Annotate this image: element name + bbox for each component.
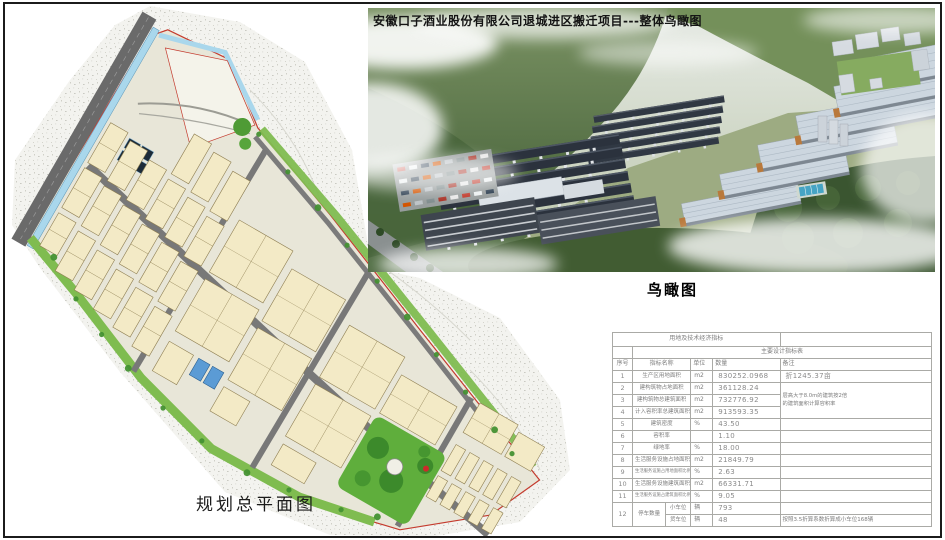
table-row: 5 建筑密度 % 43.50 bbox=[613, 419, 932, 431]
drawing-sheet: 规划总平面图 bbox=[0, 0, 945, 540]
table-title: 用地及技术经济指标 bbox=[613, 333, 781, 347]
table-row: 8 生活服务设施占地面积 m2 21849.79 bbox=[613, 455, 932, 467]
table-row: 6 容积率 1.10 bbox=[613, 431, 932, 443]
indicator-table: 用地及技术经济指标 主要设计指标表 序号 指标名称 单位 数量 备注 1 生产区… bbox=[612, 332, 932, 527]
table-row: 10 生活服务设施建筑面积 m2 66331.71 bbox=[613, 479, 932, 491]
table-row: 9 生活服务设施占用地面积比例 % 2.63 bbox=[613, 467, 932, 479]
col-header-no: 序号 bbox=[613, 359, 633, 371]
merged-remark: 层高大于8.0m的建筑按2倍 的建筑面积计算容积率 bbox=[780, 383, 932, 419]
table-row: 11 生活服务设施占建筑面积比例 % 9.05 bbox=[613, 491, 932, 503]
site-plan-caption: 规划总平面图 bbox=[196, 490, 316, 515]
col-header-remark: 备注 bbox=[780, 359, 932, 371]
col-header-unit: 单位 bbox=[691, 359, 713, 371]
table-row: 1 生产区用地面积 m2 830252.0968 折1245.37亩 bbox=[613, 371, 932, 383]
col-header-name: 指标名称 bbox=[633, 359, 691, 371]
project-title: 安徽口子酒业股份有限公司退城进区搬迁项目---整体鸟瞰图 bbox=[373, 12, 702, 29]
aerial-caption: 鸟瞰图 bbox=[647, 279, 698, 300]
table-subtitle: 主要设计指标表 bbox=[633, 347, 932, 359]
table-row: 7 绿地率 % 18.00 bbox=[613, 443, 932, 455]
aerial-rendering: 安徽口子酒业股份有限公司退城进区搬迁项目---整体鸟瞰图 bbox=[368, 8, 935, 272]
table-row-parking: 12 停车数量 小车位 辆 793 bbox=[613, 503, 932, 515]
col-header-qty: 数量 bbox=[713, 359, 780, 371]
table-row: 2 建构筑物占地面积 m2 361128.24 层高大于8.0m的建筑按2倍 的… bbox=[613, 383, 932, 395]
